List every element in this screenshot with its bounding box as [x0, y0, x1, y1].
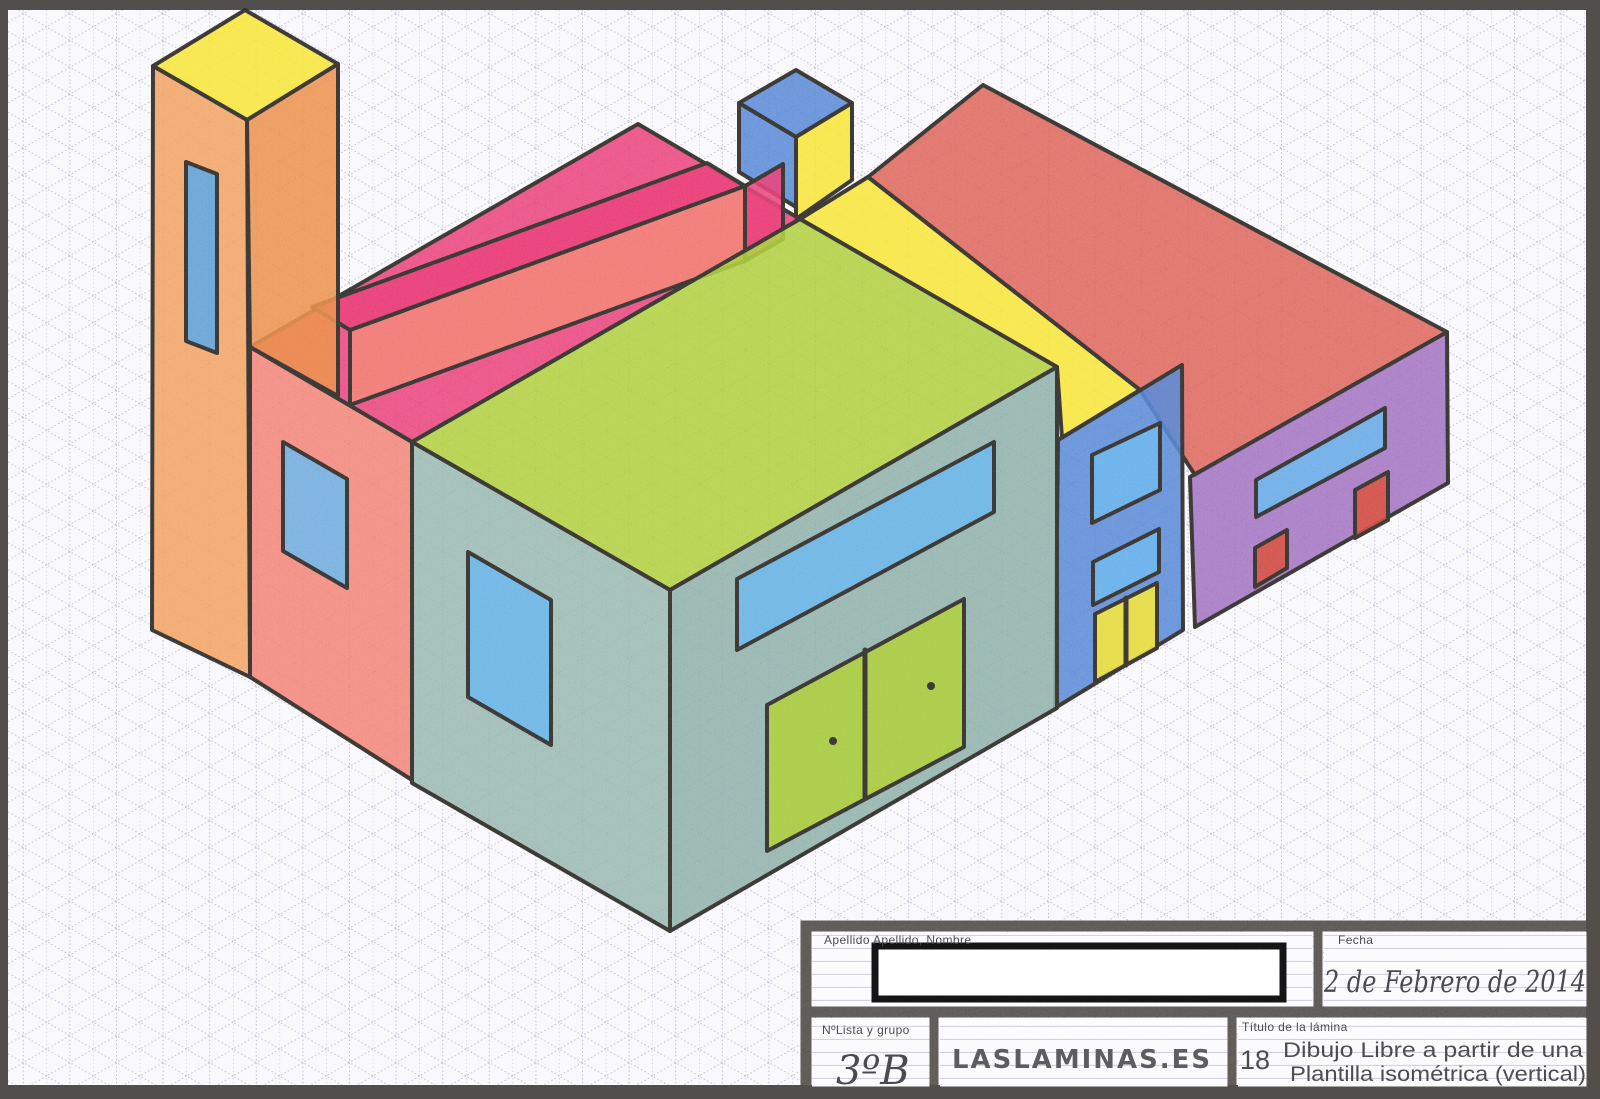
worksheet-svg: Apellido Apellido, Nombre Fecha 2 de Feb…	[0, 0, 1600, 1099]
paper-grain-overlay	[8, 10, 1586, 1085]
scanned-worksheet: Apellido Apellido, Nombre Fecha 2 de Feb…	[0, 0, 1600, 1099]
